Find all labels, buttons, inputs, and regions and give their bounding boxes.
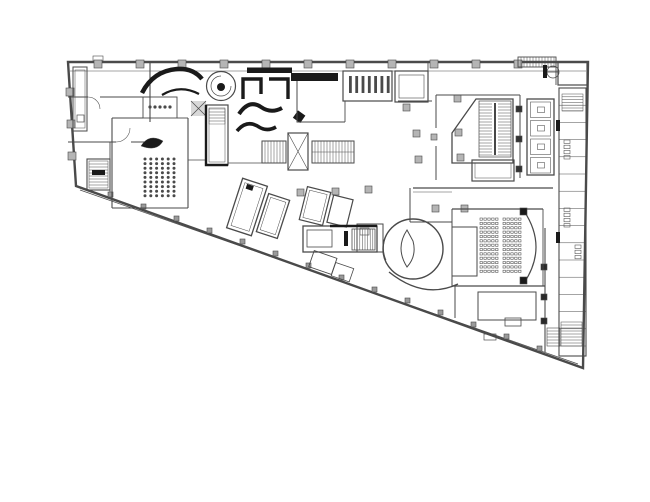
structural-column xyxy=(431,134,437,140)
stair-landing xyxy=(92,170,105,175)
wall-poche xyxy=(543,65,547,78)
exterior-wall-outline xyxy=(68,62,588,368)
spiral-stair-core xyxy=(217,83,225,91)
wall-poche xyxy=(556,232,560,243)
floor-plan-canvas xyxy=(0,0,650,502)
wall-poche xyxy=(556,120,560,131)
floor-plan-figure xyxy=(0,0,650,502)
wall-poche xyxy=(247,68,292,74)
wall-poche xyxy=(291,73,338,81)
document-page xyxy=(0,0,650,502)
poche-block xyxy=(344,231,348,246)
